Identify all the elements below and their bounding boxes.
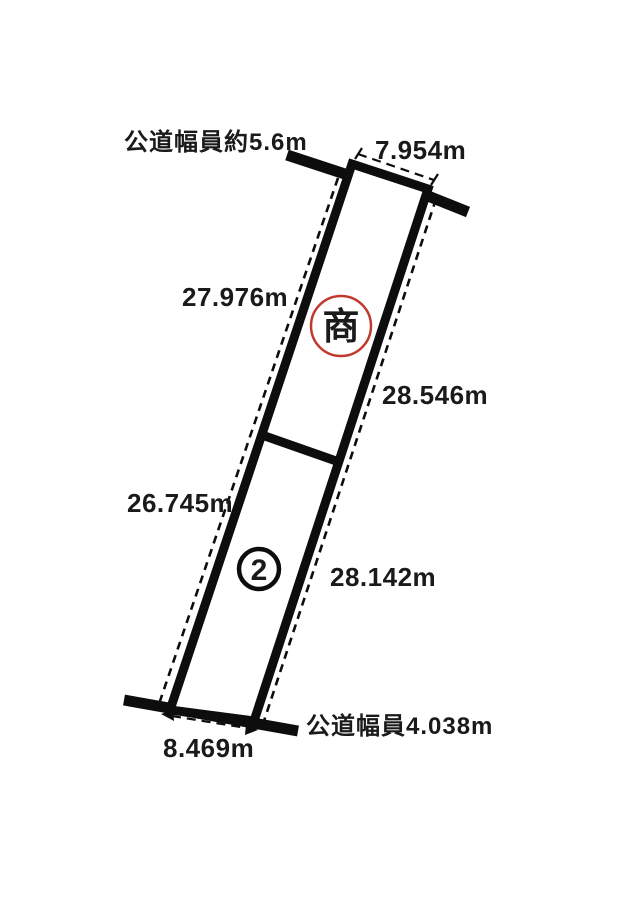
bottom-frontage-label: 8.469m [163, 733, 254, 763]
top-road-line-left [287, 155, 354, 177]
diagram-canvas: 商 2 公道幅員約5.6m 7.954m 27.976m 28.546m 26.… [0, 0, 636, 900]
lower-right-side-label: 28.142m [330, 562, 436, 592]
bottom-road-width-label: 公道幅員4.038m [306, 712, 493, 740]
upper-left-side-label: 27.976m [182, 282, 288, 312]
survey-diagram: 商 2 公道幅員約5.6m 7.954m 27.976m 28.546m 26.… [0, 0, 636, 900]
plot-number-text: 2 [251, 554, 268, 587]
zoning-mark-text: 商 [323, 306, 360, 347]
upper-right-side-label: 28.546m [382, 380, 488, 410]
top-frontage-label: 7.954m [375, 135, 466, 165]
lower-left-side-label: 26.745m [127, 488, 233, 518]
top-road-width-label: 公道幅員約5.6m [124, 128, 308, 156]
parcel-outline [170, 164, 428, 721]
top-frontage-tick-left [355, 148, 362, 159]
